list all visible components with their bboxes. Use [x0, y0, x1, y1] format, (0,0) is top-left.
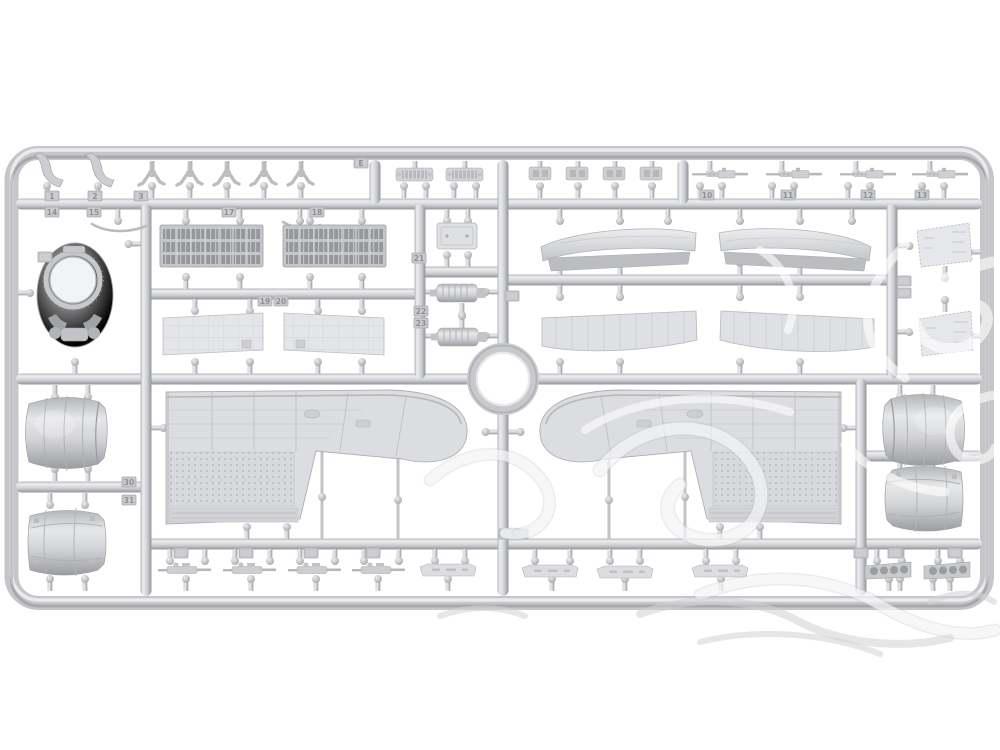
part-detail-block — [640, 167, 662, 180]
part-panel-strip — [692, 565, 748, 577]
part-machine-gun — [766, 168, 822, 178]
svg-text:10: 10 — [702, 191, 712, 200]
part-engine-cowling — [28, 508, 106, 576]
part-ribbed-fitting — [446, 168, 483, 181]
svg-text:21: 21 — [414, 254, 424, 263]
part-exhaust-manifold — [924, 562, 970, 579]
part-engine-cowling — [26, 396, 108, 471]
part-stabilizer-upper — [719, 229, 871, 271]
part-riveted-panel — [284, 313, 384, 355]
part-panel-strip — [597, 566, 653, 578]
svg-text:3: 3 — [138, 192, 143, 201]
photo-canvas: E 1 2 3 14 15 17 18 19 20 21 22 23 30 31… — [0, 0, 1000, 750]
svg-text:13: 13 — [917, 191, 927, 200]
svg-text:1: 1 — [49, 192, 54, 201]
part-louvered-panel — [283, 225, 386, 267]
svg-text:17: 17 — [224, 208, 234, 217]
part-hatch-door — [437, 223, 477, 249]
part-detail-block — [566, 167, 588, 180]
part-riveted-panel — [163, 313, 263, 355]
part-cylindrical-unit — [430, 284, 486, 302]
svg-text:31: 31 — [124, 496, 134, 505]
part-exhaust-manifold — [865, 562, 911, 579]
part-machine-gun — [912, 168, 968, 178]
svg-text:19: 19 — [260, 297, 270, 306]
part-wing-upper-right — [540, 390, 841, 524]
svg-text:E: E — [358, 159, 363, 168]
part-engine-cowling — [885, 464, 963, 532]
part-louvered-panel — [160, 225, 263, 267]
part-trapezoid-panel — [917, 223, 972, 267]
center-ring-hub — [470, 346, 537, 413]
svg-text:18: 18 — [312, 208, 322, 217]
svg-text:30: 30 — [124, 478, 134, 487]
part-machine-gun — [840, 168, 896, 178]
part-machine-gun — [692, 168, 748, 178]
svg-text:14: 14 — [47, 208, 57, 217]
part-stabilizer-lower — [542, 311, 697, 351]
svg-text:15: 15 — [89, 208, 99, 217]
sprue-photo: E 1 2 3 14 15 17 18 19 20 21 22 23 30 31… — [0, 0, 1000, 750]
part-detail-block — [529, 167, 551, 180]
part-stabilizer-upper — [541, 229, 696, 271]
part-wing-upper-left — [166, 390, 467, 524]
svg-text:2: 2 — [92, 192, 97, 201]
svg-text:23: 23 — [416, 319, 426, 328]
part-panel-strip — [420, 564, 476, 576]
part-detail-block — [603, 167, 625, 180]
part-panel-strip — [522, 565, 578, 577]
part-cylindrical-unit — [431, 328, 487, 346]
svg-text:22: 22 — [416, 307, 426, 316]
svg-text:11: 11 — [783, 191, 793, 200]
part-curved-rod — [92, 224, 146, 231]
svg-text:20: 20 — [276, 297, 286, 306]
part-ribbed-fitting — [396, 168, 433, 181]
svg-text:12: 12 — [863, 191, 873, 200]
sprue-letter-tag: E — [354, 158, 368, 168]
part-stabilizer-lower — [720, 311, 874, 351]
